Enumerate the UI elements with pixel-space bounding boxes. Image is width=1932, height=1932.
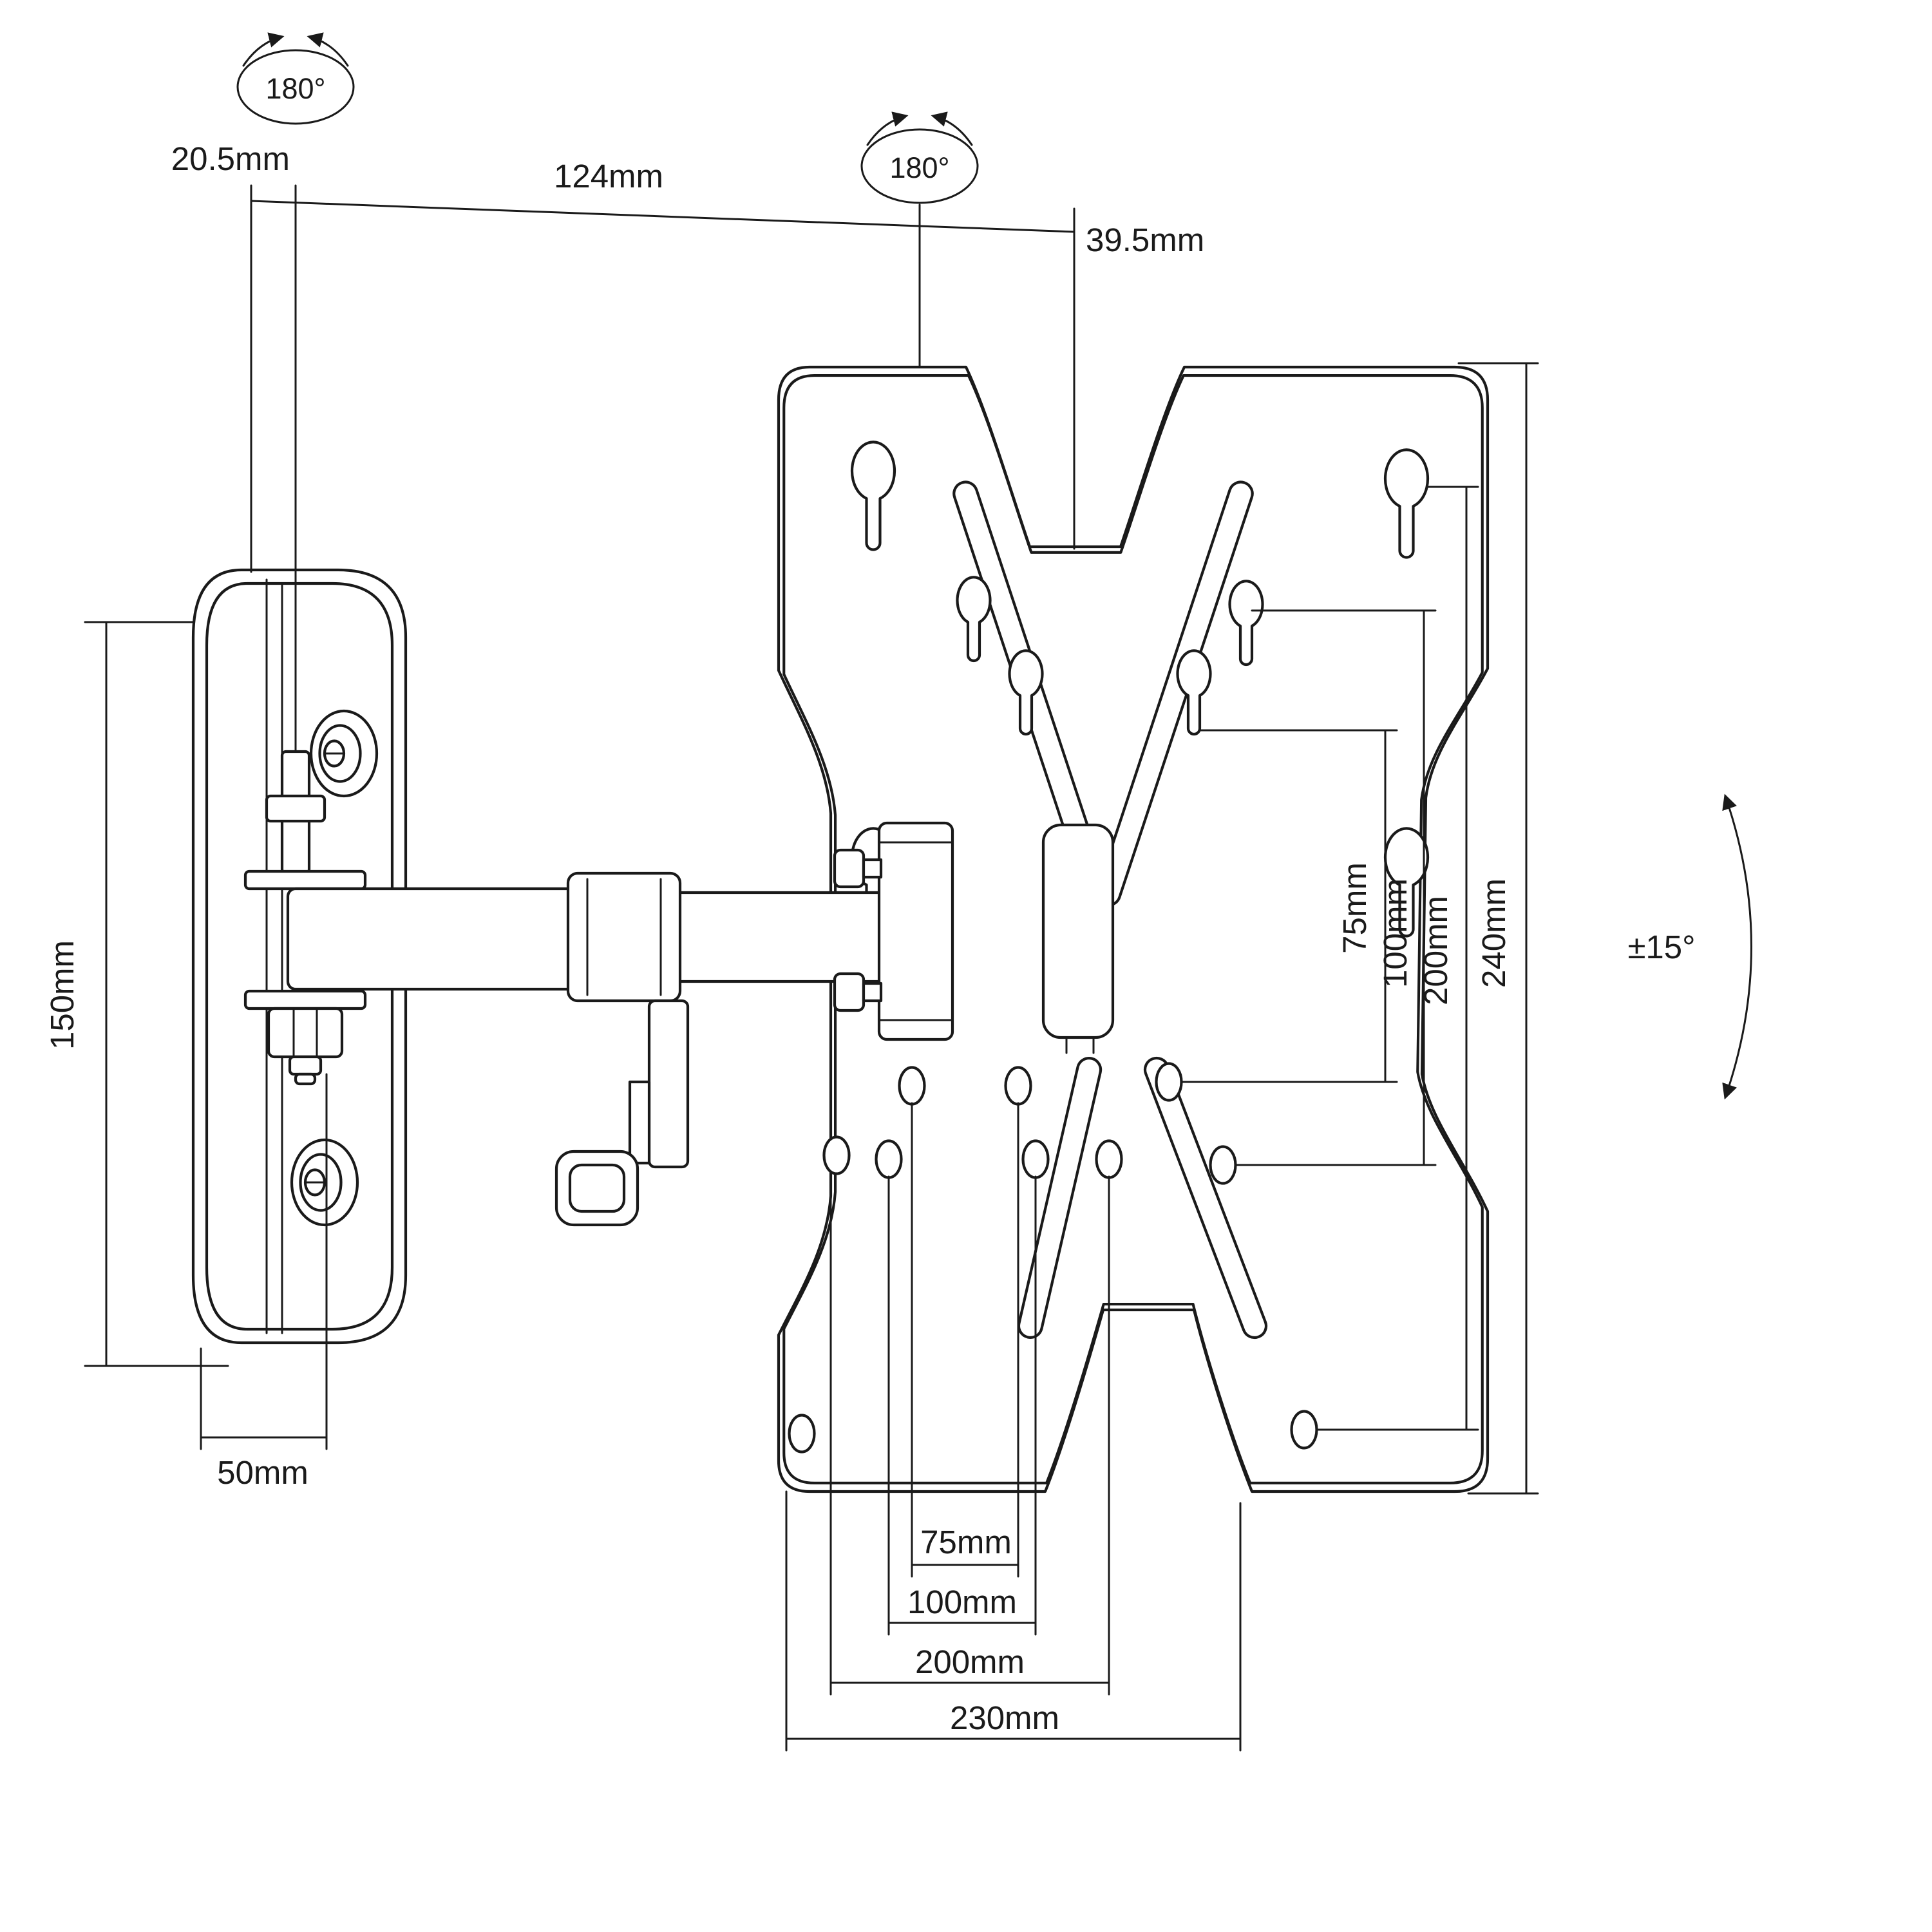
mounting-hole bbox=[790, 1416, 815, 1452]
tilt-arc-arrow-icon bbox=[1725, 796, 1752, 1097]
dim-v200-label: 200mm bbox=[1417, 896, 1454, 1005]
dim-h75-label: 75mm bbox=[920, 1524, 1012, 1560]
mounting-hole bbox=[824, 1137, 849, 1174]
bracket-bolt-head bbox=[835, 850, 864, 887]
rotation-arrow-icon bbox=[243, 37, 282, 66]
plate-window bbox=[1043, 825, 1113, 1037]
lock-neck bbox=[630, 1082, 649, 1163]
swivel-plate-label: 180° bbox=[889, 151, 949, 184]
arm-tube bbox=[676, 893, 885, 981]
swivel-wall-label: 180° bbox=[265, 72, 325, 105]
bracket-bolt-shaft bbox=[864, 983, 881, 1001]
vesa-bracket bbox=[879, 823, 952, 1039]
mounting-hole bbox=[1211, 1147, 1236, 1184]
nut-tip bbox=[296, 1074, 315, 1084]
rotation-arrow-icon bbox=[933, 116, 972, 145]
mounting-hole bbox=[1023, 1141, 1048, 1178]
dim-h100-label: 100mm bbox=[907, 1584, 1017, 1620]
swivel-indicator-plate: 180° bbox=[862, 116, 978, 203]
bracket-bolt-shaft bbox=[864, 860, 881, 877]
mounting-hole bbox=[900, 1068, 925, 1104]
mounting-hole bbox=[1157, 1064, 1182, 1101]
mounting-hole bbox=[876, 1141, 902, 1178]
dimension-line bbox=[251, 201, 1074, 232]
pivot-collar bbox=[267, 796, 325, 821]
swivel-indicator-wall: 180° bbox=[238, 37, 354, 124]
rotation-arrow-icon bbox=[309, 37, 348, 66]
dim-h200-label: 200mm bbox=[915, 1643, 1025, 1680]
dim-v75-label: 75mm bbox=[1336, 862, 1373, 954]
wall-screw-boss-bottom bbox=[292, 1140, 357, 1225]
mounting-hole bbox=[1097, 1141, 1122, 1178]
lock-bracket bbox=[649, 1001, 688, 1167]
tilt-range-label: ±15° bbox=[1627, 929, 1695, 965]
pivot-washer-bottom bbox=[245, 991, 365, 1009]
dim-vesa-horizontal-230: 230mm bbox=[786, 1492, 1240, 1750]
dim-v240-label: 240mm bbox=[1475, 878, 1512, 988]
bracket-bolt-head bbox=[835, 974, 864, 1010]
pivot-washer-top bbox=[245, 871, 365, 889]
dim-wall-plate-width-label: 50mm bbox=[217, 1454, 308, 1491]
mounting-hole bbox=[1292, 1412, 1317, 1448]
dim-arm-reach-label: 124mm bbox=[554, 158, 663, 194]
hex-nut bbox=[269, 1009, 342, 1057]
arm-clamp bbox=[568, 873, 680, 1001]
tilt-indicator: ±15° bbox=[1627, 796, 1751, 1097]
dim-v100-label: 100mm bbox=[1377, 878, 1414, 988]
wall-screw-boss-top bbox=[311, 711, 377, 796]
mount-dimension-diagram: 180° 180° 20.5mm 124mm 39.5mm 150mm bbox=[0, 0, 1932, 1932]
nut-stem bbox=[290, 1057, 321, 1074]
dim-wall-offset-label: 20.5mm bbox=[171, 140, 290, 177]
rotation-arrow-icon bbox=[867, 116, 906, 145]
mounting-hole bbox=[1006, 1068, 1031, 1104]
dim-h230-label: 230mm bbox=[950, 1700, 1059, 1736]
dim-wall-plate-height-label: 150mm bbox=[44, 940, 80, 1050]
dim-plate-offset-label: 39.5mm bbox=[1086, 222, 1204, 258]
